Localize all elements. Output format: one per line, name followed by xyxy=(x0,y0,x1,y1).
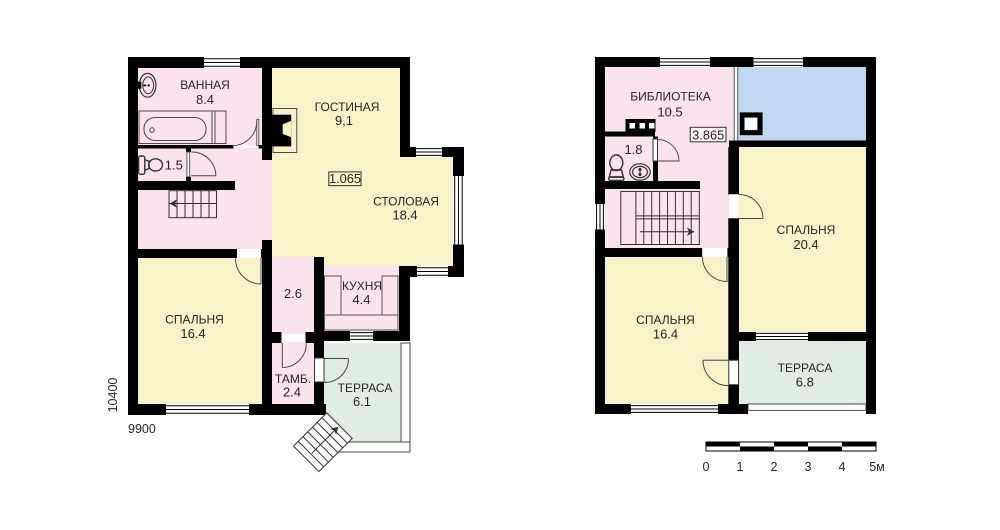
svg-text:6.1: 6.1 xyxy=(353,394,371,409)
svg-text:ВАННАЯ: ВАННАЯ xyxy=(180,78,230,92)
svg-text:9900: 9900 xyxy=(128,422,156,436)
svg-text:ТЕРРАСА: ТЕРРАСА xyxy=(338,381,393,395)
svg-text:6.8: 6.8 xyxy=(796,375,814,390)
svg-text:4: 4 xyxy=(839,460,846,474)
svg-text:СПАЛЬНЯ: СПАЛЬНЯ xyxy=(777,223,836,237)
svg-text:4.4: 4.4 xyxy=(352,292,370,307)
svg-text:2: 2 xyxy=(771,460,778,474)
svg-text:КУХНЯ: КУХНЯ xyxy=(342,279,382,293)
svg-text:10400: 10400 xyxy=(106,378,120,413)
svg-text:1.065: 1.065 xyxy=(329,171,361,186)
svg-text:16.4: 16.4 xyxy=(180,326,205,341)
svg-text:10.5: 10.5 xyxy=(657,105,682,120)
svg-text:3.865: 3.865 xyxy=(692,127,724,142)
svg-text:2.4: 2.4 xyxy=(283,385,301,400)
svg-text:1.8: 1.8 xyxy=(624,142,642,157)
svg-text:СТОЛОВАЯ: СТОЛОВАЯ xyxy=(373,195,439,209)
svg-text:СПАЛЬНЯ: СПАЛЬНЯ xyxy=(636,313,695,327)
svg-text:2.6: 2.6 xyxy=(284,286,302,301)
svg-text:8.4: 8.4 xyxy=(196,92,214,107)
svg-text:ТЕРРАСА: ТЕРРАСА xyxy=(778,361,833,375)
svg-text:20.4: 20.4 xyxy=(793,237,818,252)
svg-text:9,1: 9,1 xyxy=(335,113,353,128)
svg-text:3: 3 xyxy=(805,460,812,474)
svg-text:5м: 5м xyxy=(869,460,885,474)
svg-text:СПАЛЬНЯ: СПАЛЬНЯ xyxy=(165,313,224,327)
svg-text:1.5: 1.5 xyxy=(165,158,183,173)
svg-text:0: 0 xyxy=(703,460,710,474)
svg-text:БИБЛИОТЕКА: БИБЛИОТЕКА xyxy=(630,90,711,104)
svg-text:ГОСТИНАЯ: ГОСТИНАЯ xyxy=(315,100,380,114)
svg-text:16.4: 16.4 xyxy=(653,327,678,342)
svg-text:1: 1 xyxy=(737,460,744,474)
svg-text:18.4: 18.4 xyxy=(392,208,417,223)
